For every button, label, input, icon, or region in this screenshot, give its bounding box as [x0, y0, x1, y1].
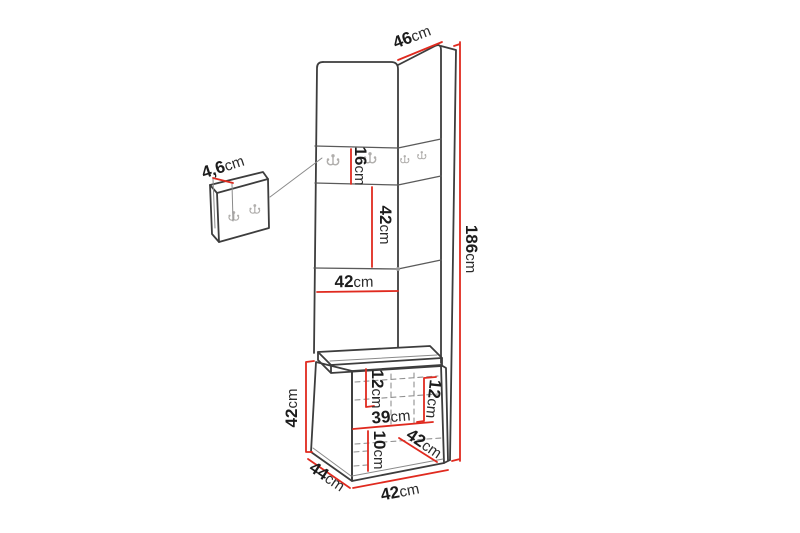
dim-hook-strip-height-label: 16cm	[351, 147, 370, 186]
dim-panel-width-label: 42cm	[334, 272, 373, 292]
hook-panel-front-face-fill	[217, 179, 269, 242]
dim-bench-height-label: 42cm	[282, 389, 301, 428]
dim-hook-panel-ext-1	[213, 179, 215, 228]
dim-total-height-label: 186cm	[462, 225, 481, 273]
diagram-canvas: 46cm 4,6cm 16cm 42cm 42cm 186cm 42cm 12c…	[0, 0, 800, 533]
dim-panel-width-line	[317, 291, 398, 292]
dim-inner-width-label: 39cm	[371, 405, 411, 427]
dim-middle-section-label: 42cm	[376, 206, 395, 245]
right-panel-face	[398, 43, 442, 363]
dim-base-height-label: 10cm	[370, 431, 389, 470]
leader-line	[270, 158, 322, 197]
furniture-dimension-diagram: 46cm 4,6cm 16cm 42cm 42cm 186cm 42cm 12c…	[0, 0, 800, 533]
dim-cushion-left-label: 12cm	[368, 370, 387, 409]
seam-junction-dot	[396, 267, 400, 271]
